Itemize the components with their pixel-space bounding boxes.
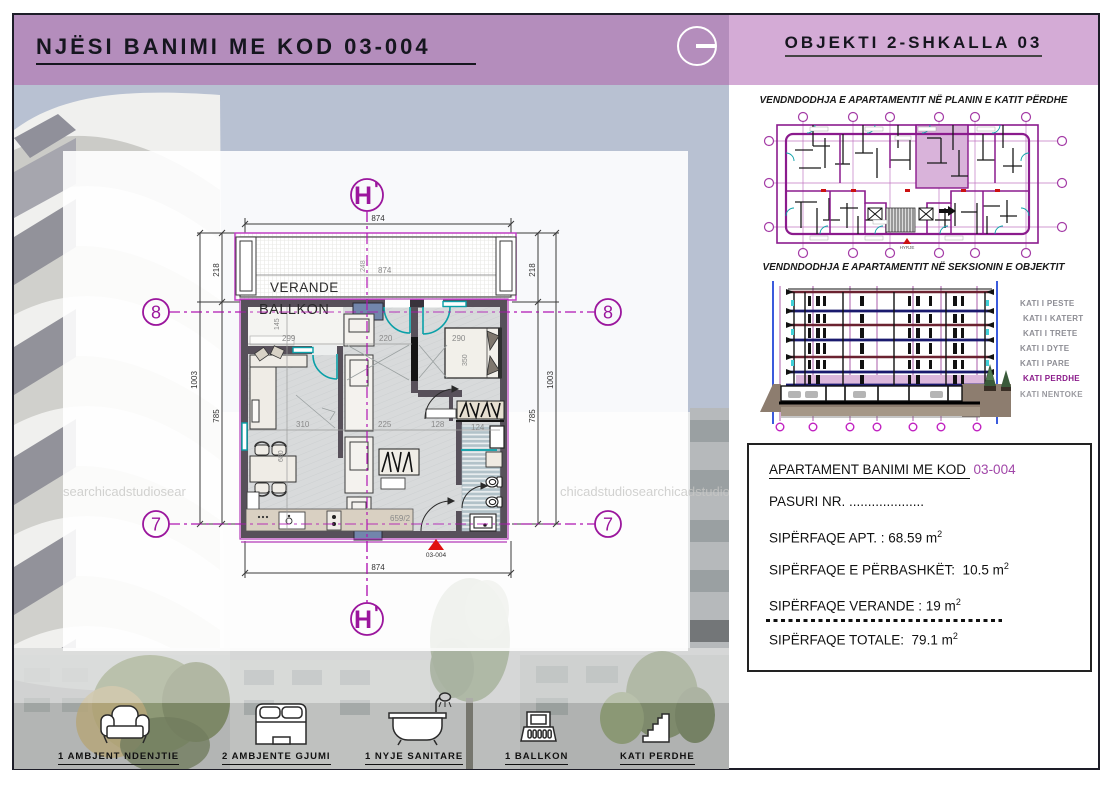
svg-text:1003: 1003 bbox=[190, 371, 199, 389]
svg-text:785: 785 bbox=[528, 409, 537, 423]
svg-text:785: 785 bbox=[212, 409, 221, 423]
svg-text:8: 8 bbox=[151, 303, 161, 323]
svg-text:searchicadstudiosear: searchicadstudiosear bbox=[63, 484, 187, 499]
svg-text:H: H bbox=[354, 182, 372, 210]
svg-text:874: 874 bbox=[371, 214, 385, 223]
svg-text:290: 290 bbox=[452, 334, 466, 343]
svg-text:7: 7 bbox=[603, 515, 613, 535]
svg-text:220: 220 bbox=[379, 334, 393, 343]
svg-text:218: 218 bbox=[212, 263, 221, 277]
svg-text:': ' bbox=[374, 179, 379, 201]
svg-text:03-004: 03-004 bbox=[426, 552, 447, 559]
svg-text:8: 8 bbox=[603, 303, 613, 323]
svg-text:299: 299 bbox=[282, 334, 296, 343]
svg-text:BALLKON: BALLKON bbox=[259, 302, 329, 318]
svg-text:225: 225 bbox=[378, 420, 392, 429]
svg-text:145: 145 bbox=[274, 318, 281, 330]
svg-text:124: 124 bbox=[471, 423, 485, 432]
svg-text:H: H bbox=[354, 606, 372, 634]
svg-text:659/2: 659/2 bbox=[390, 514, 411, 523]
svg-text:7: 7 bbox=[151, 515, 161, 535]
svg-text:350: 350 bbox=[462, 354, 469, 366]
svg-text:680: 680 bbox=[278, 450, 285, 462]
svg-text:VERANDE: VERANDE bbox=[270, 280, 339, 295]
svg-text:': ' bbox=[374, 603, 379, 625]
svg-text:248: 248 bbox=[360, 260, 367, 272]
svg-text:218: 218 bbox=[528, 263, 537, 277]
svg-text:HYRJE: HYRJE bbox=[900, 245, 915, 250]
svg-text:1003: 1003 bbox=[546, 371, 555, 389]
svg-text:310: 310 bbox=[296, 420, 310, 429]
svg-text:128: 128 bbox=[431, 420, 445, 429]
svg-text:chicadstudiosearchicadstudiose: chicadstudiosearchicadstudiose bbox=[560, 484, 729, 499]
svg-text:874: 874 bbox=[371, 563, 385, 572]
svg-text:874: 874 bbox=[378, 266, 392, 275]
